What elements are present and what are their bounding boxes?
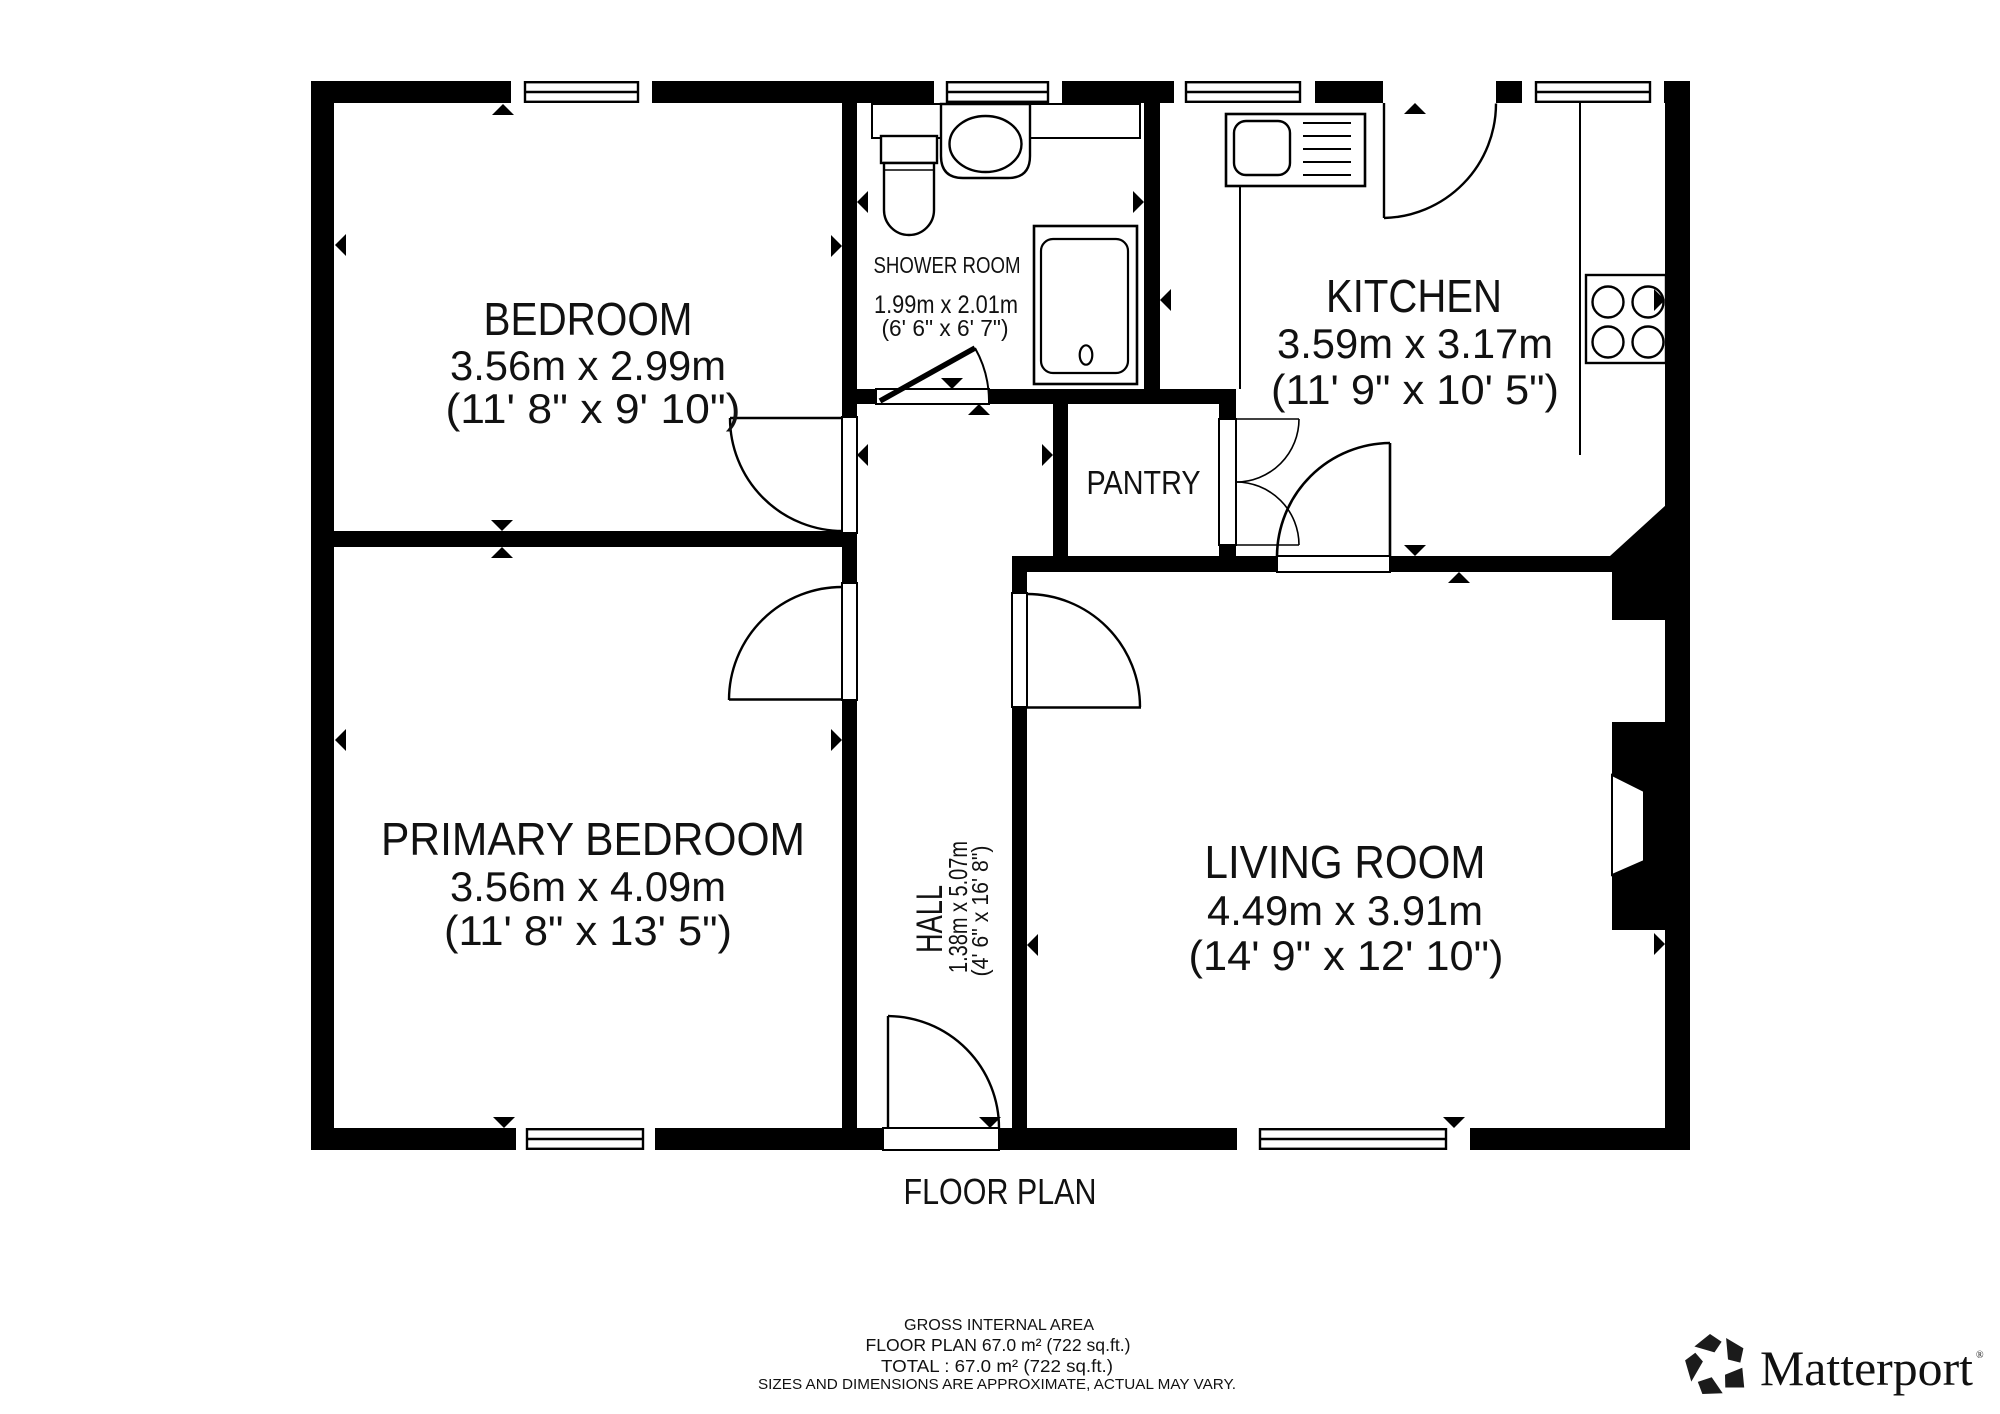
- svg-text:(4' 6" x 16' 8"): (4' 6" x 16' 8"): [967, 846, 993, 977]
- svg-text:(11' 8" x 9' 10"): (11' 8" x 9' 10"): [446, 385, 741, 432]
- svg-text:PANTRY: PANTRY: [1087, 464, 1201, 501]
- svg-text:®: ®: [1976, 1350, 1984, 1361]
- svg-text:FLOOR PLAN: FLOOR PLAN: [904, 1171, 1097, 1212]
- svg-text:4.49m x 3.91m: 4.49m x 3.91m: [1207, 887, 1483, 934]
- svg-text:(14' 9" x 12' 10"): (14' 9" x 12' 10"): [1189, 932, 1504, 979]
- svg-text:TOTAL : 67.0 m² (722 sq.ft.): TOTAL : 67.0 m² (722 sq.ft.): [881, 1356, 1113, 1376]
- svg-text:3.56m x 2.99m: 3.56m x 2.99m: [450, 342, 726, 389]
- svg-text:BEDROOM: BEDROOM: [484, 293, 693, 345]
- svg-text:SHOWER ROOM: SHOWER ROOM: [874, 252, 1021, 278]
- svg-text:FLOOR PLAN 67.0 m² (722 sq.ft.: FLOOR PLAN 67.0 m² (722 sq.ft.): [866, 1335, 1131, 1355]
- svg-text:(6' 6" x 6' 7"): (6' 6" x 6' 7"): [882, 315, 1009, 341]
- svg-text:(11' 8" x 13' 5"): (11' 8" x 13' 5"): [444, 907, 732, 954]
- svg-text:GROSS INTERNAL AREA: GROSS INTERNAL AREA: [904, 1317, 1094, 1334]
- svg-text:LIVING ROOM: LIVING ROOM: [1205, 836, 1486, 888]
- svg-text:SIZES AND DIMENSIONS ARE APPRO: SIZES AND DIMENSIONS ARE APPROXIMATE, AC…: [758, 1376, 1236, 1393]
- svg-text:PRIMARY BEDROOM: PRIMARY BEDROOM: [381, 813, 805, 865]
- svg-text:Matterport: Matterport: [1760, 1340, 1973, 1396]
- svg-text:3.56m x 4.09m: 3.56m x 4.09m: [450, 863, 726, 910]
- svg-text:3.59m x 3.17m: 3.59m x 3.17m: [1277, 320, 1553, 367]
- svg-text:KITCHEN: KITCHEN: [1326, 270, 1502, 322]
- svg-text:(11' 9" x 10' 5"): (11' 9" x 10' 5"): [1271, 366, 1559, 413]
